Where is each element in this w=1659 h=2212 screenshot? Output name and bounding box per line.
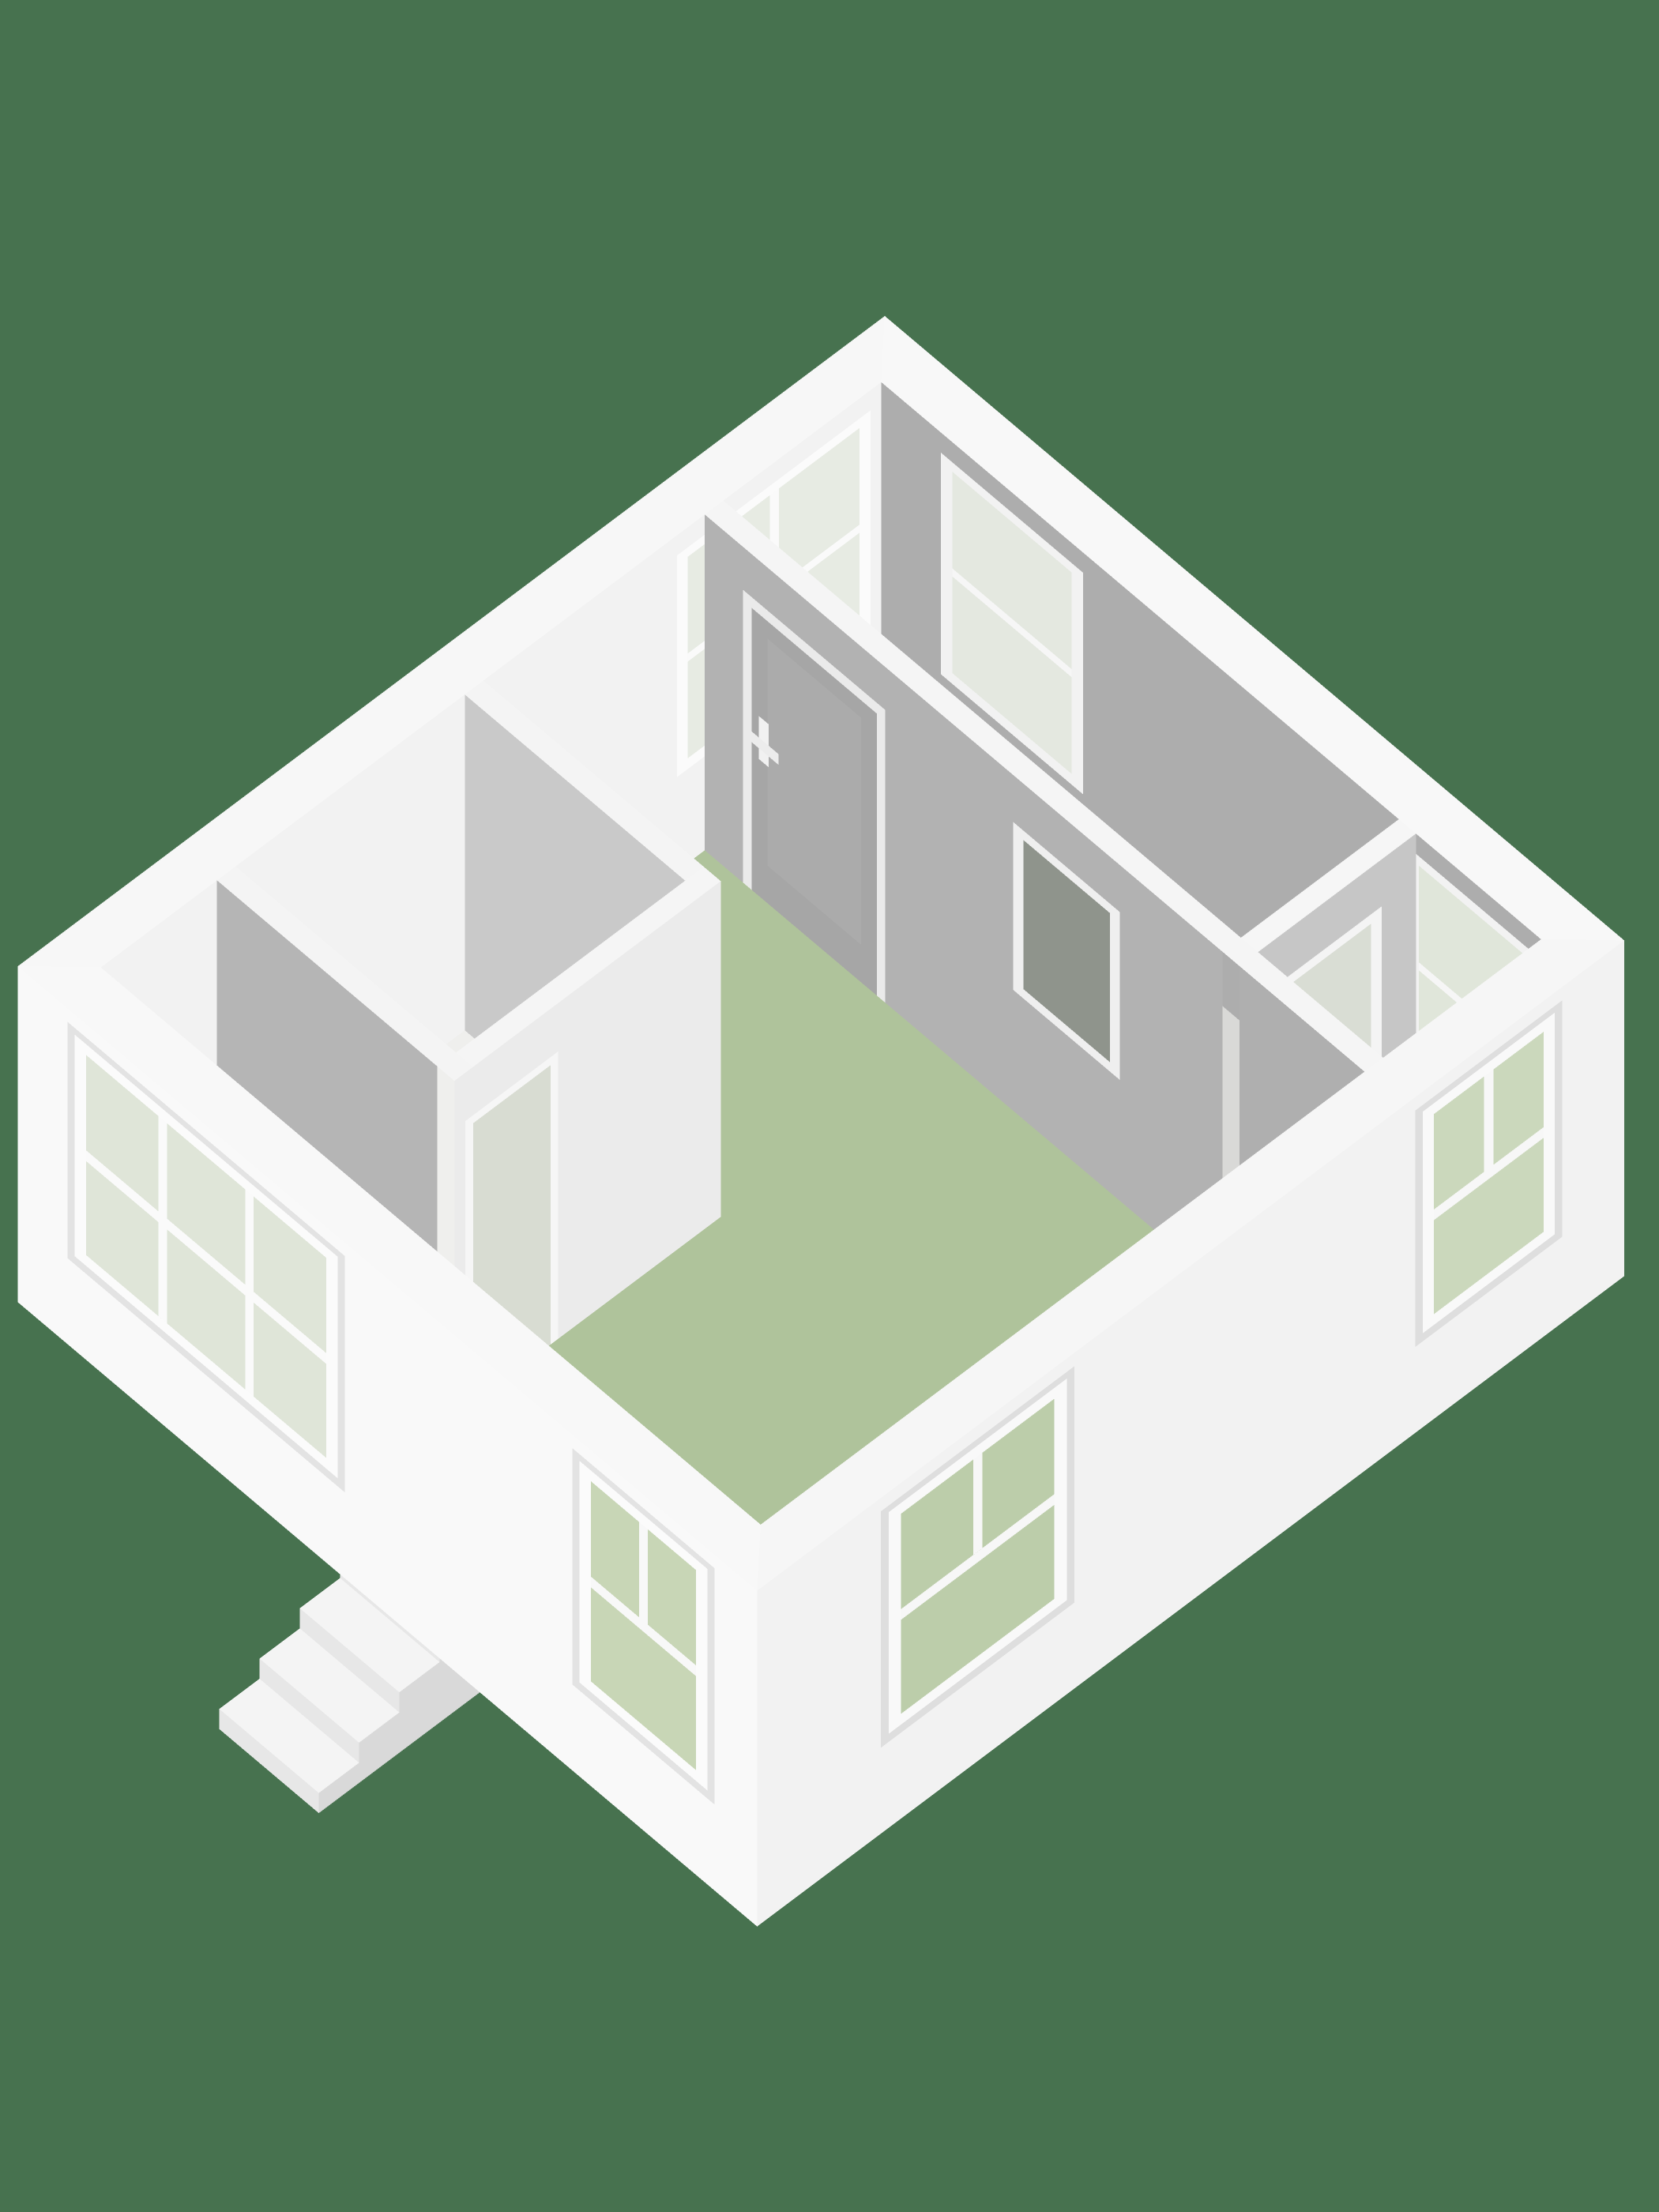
window-se1-sash-vert: [1484, 1070, 1494, 1172]
window-sw2-sash-vert: [639, 1522, 648, 1625]
floorplan-stage: [0, 0, 1659, 2212]
floorplan-3d-view: [0, 0, 1659, 2212]
window-se2-sash-vert: [973, 1453, 983, 1556]
